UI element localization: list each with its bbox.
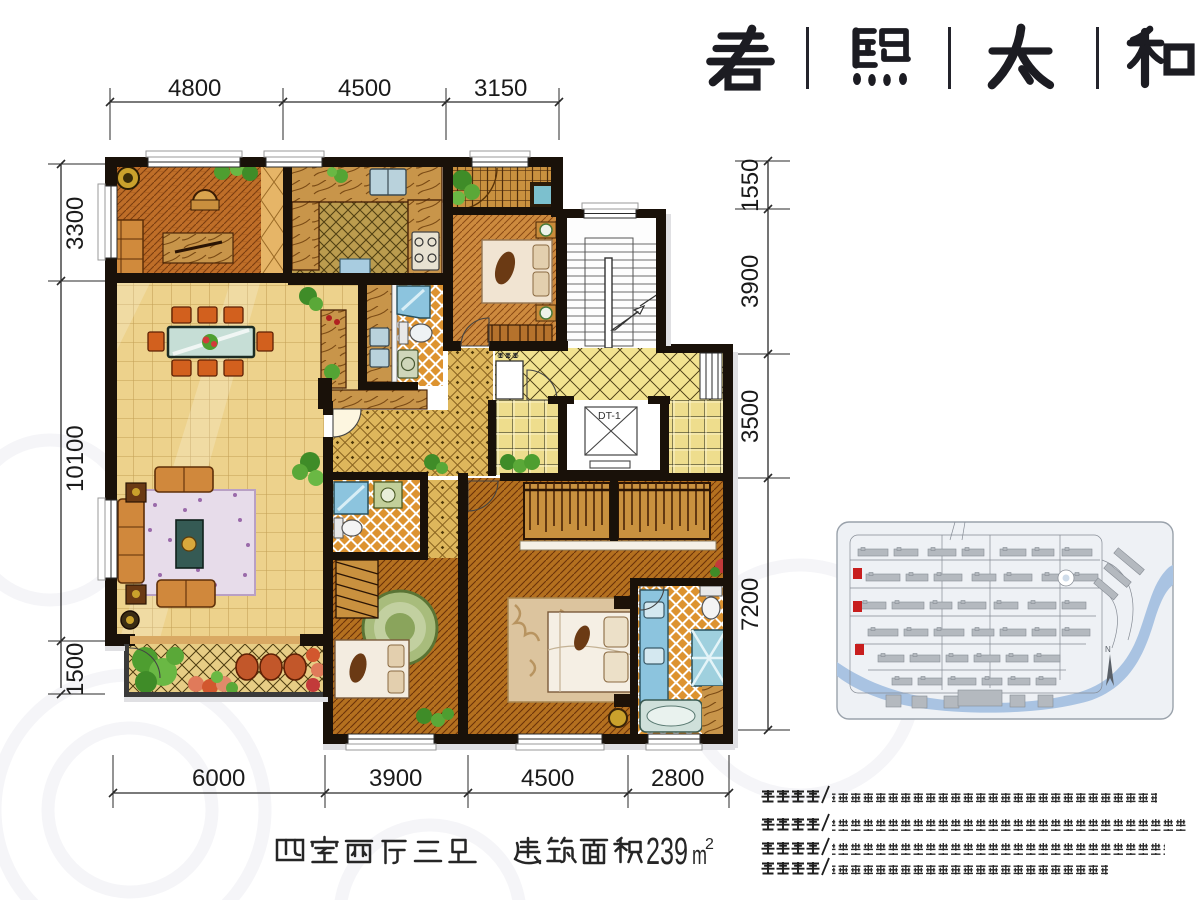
svg-text:2: 2 <box>705 836 714 853</box>
svg-text:3500: 3500 <box>737 390 764 443</box>
svg-text:1500: 1500 <box>62 643 89 696</box>
svg-text:3150: 3150 <box>474 75 527 102</box>
svg-text:3300: 3300 <box>62 197 89 250</box>
svg-text:7200: 7200 <box>737 578 764 631</box>
svg-text:239: 239 <box>646 831 688 873</box>
svg-text:1550: 1550 <box>737 159 764 212</box>
svg-text:4500: 4500 <box>338 75 391 102</box>
svg-text:4500: 4500 <box>521 765 574 792</box>
svg-text:6000: 6000 <box>192 765 245 792</box>
svg-text:10100: 10100 <box>62 425 89 492</box>
svg-text:N: N <box>1105 645 1111 654</box>
svg-text:3900: 3900 <box>737 255 764 308</box>
svg-text:DT-1: DT-1 <box>598 410 621 422</box>
svg-text:2800: 2800 <box>651 765 704 792</box>
svg-text:3900: 3900 <box>369 765 422 792</box>
svg-text:4800: 4800 <box>168 75 221 102</box>
